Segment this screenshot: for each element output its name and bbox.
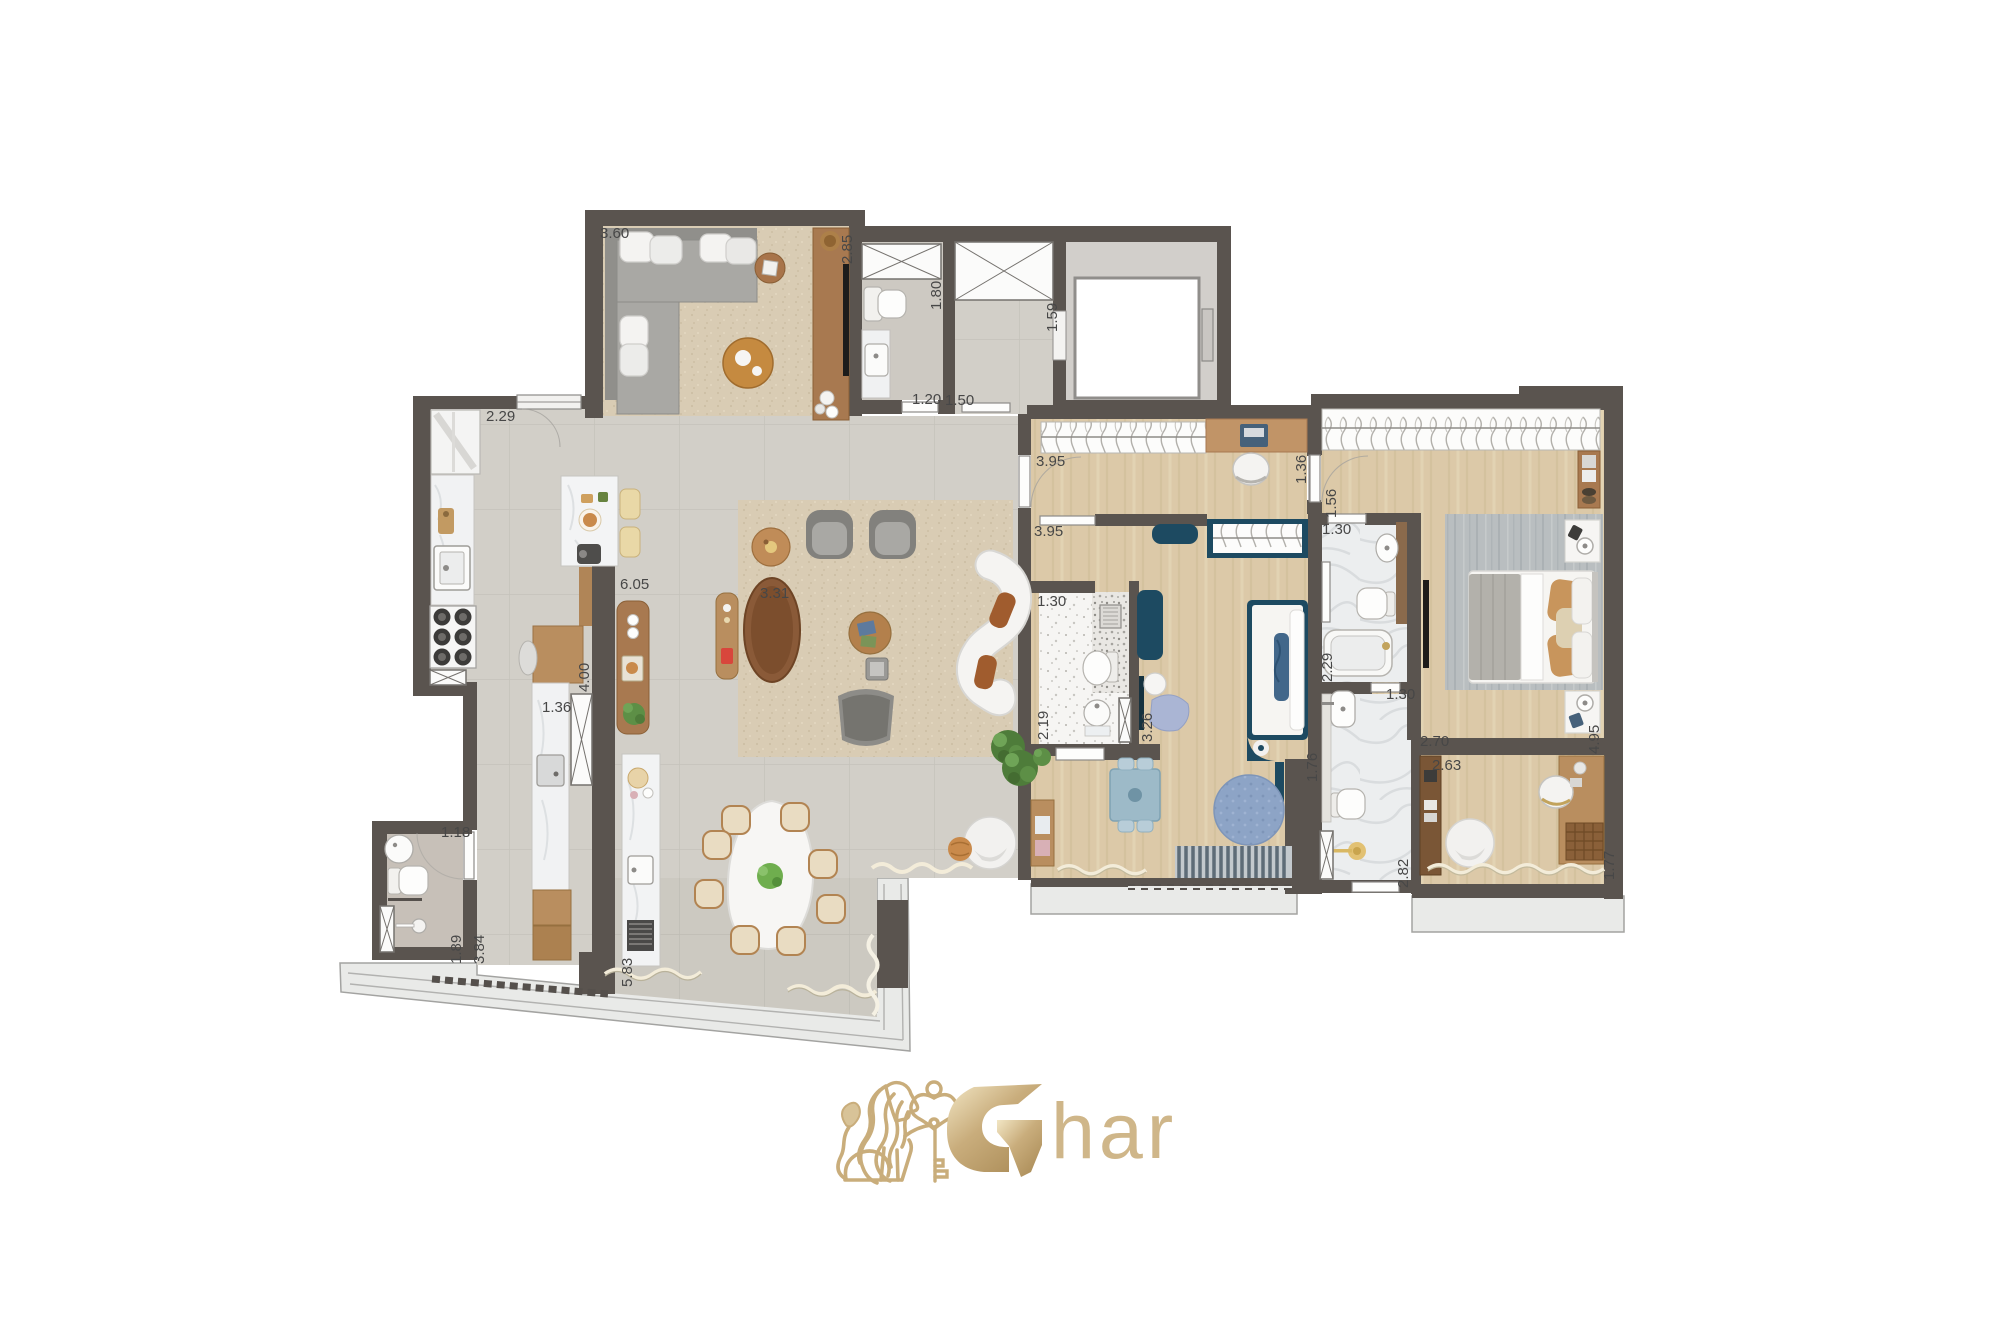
svg-text:1.18: 1.18: [441, 824, 470, 841]
svg-text:3.95: 3.95: [1036, 453, 1065, 470]
svg-text:1.30: 1.30: [1386, 686, 1415, 703]
svg-text:2.63: 2.63: [1432, 757, 1461, 774]
svg-text:1.36: 1.36: [1293, 455, 1310, 484]
svg-text:har: har: [1051, 1086, 1177, 1175]
svg-text:2.29: 2.29: [1319, 653, 1336, 682]
svg-text:1.30: 1.30: [1037, 593, 1066, 610]
svg-text:1.76: 1.76: [1304, 753, 1321, 782]
svg-text:5.83: 5.83: [619, 958, 636, 987]
svg-text:1.59: 1.59: [1044, 303, 1061, 332]
svg-text:3.31: 3.31: [760, 585, 789, 602]
svg-text:3.26: 3.26: [1139, 713, 1156, 742]
svg-text:1.80: 1.80: [928, 281, 945, 310]
svg-text:3.60: 3.60: [600, 225, 629, 242]
svg-text:4.00: 4.00: [576, 663, 593, 692]
svg-text:6.05: 6.05: [620, 576, 649, 593]
svg-text:2.70: 2.70: [1420, 733, 1449, 750]
svg-text:2.19: 2.19: [1035, 711, 1052, 740]
svg-text:2.82: 2.82: [1395, 859, 1412, 888]
svg-text:1.77: 1.77: [1601, 851, 1618, 880]
svg-text:4.95: 4.95: [1586, 725, 1603, 754]
svg-text:2.85: 2.85: [839, 235, 856, 264]
svg-text:1.36: 1.36: [542, 699, 571, 716]
svg-text:1.50: 1.50: [945, 392, 974, 409]
svg-text:1.30: 1.30: [1322, 521, 1351, 538]
svg-text:3.95: 3.95: [1034, 523, 1063, 540]
svg-text:2.29: 2.29: [486, 408, 515, 425]
svg-text:1.20: 1.20: [912, 391, 941, 408]
svg-text:1.56: 1.56: [1323, 489, 1340, 518]
svg-text:1.89: 1.89: [448, 935, 465, 964]
svg-text:3.84: 3.84: [471, 935, 488, 964]
